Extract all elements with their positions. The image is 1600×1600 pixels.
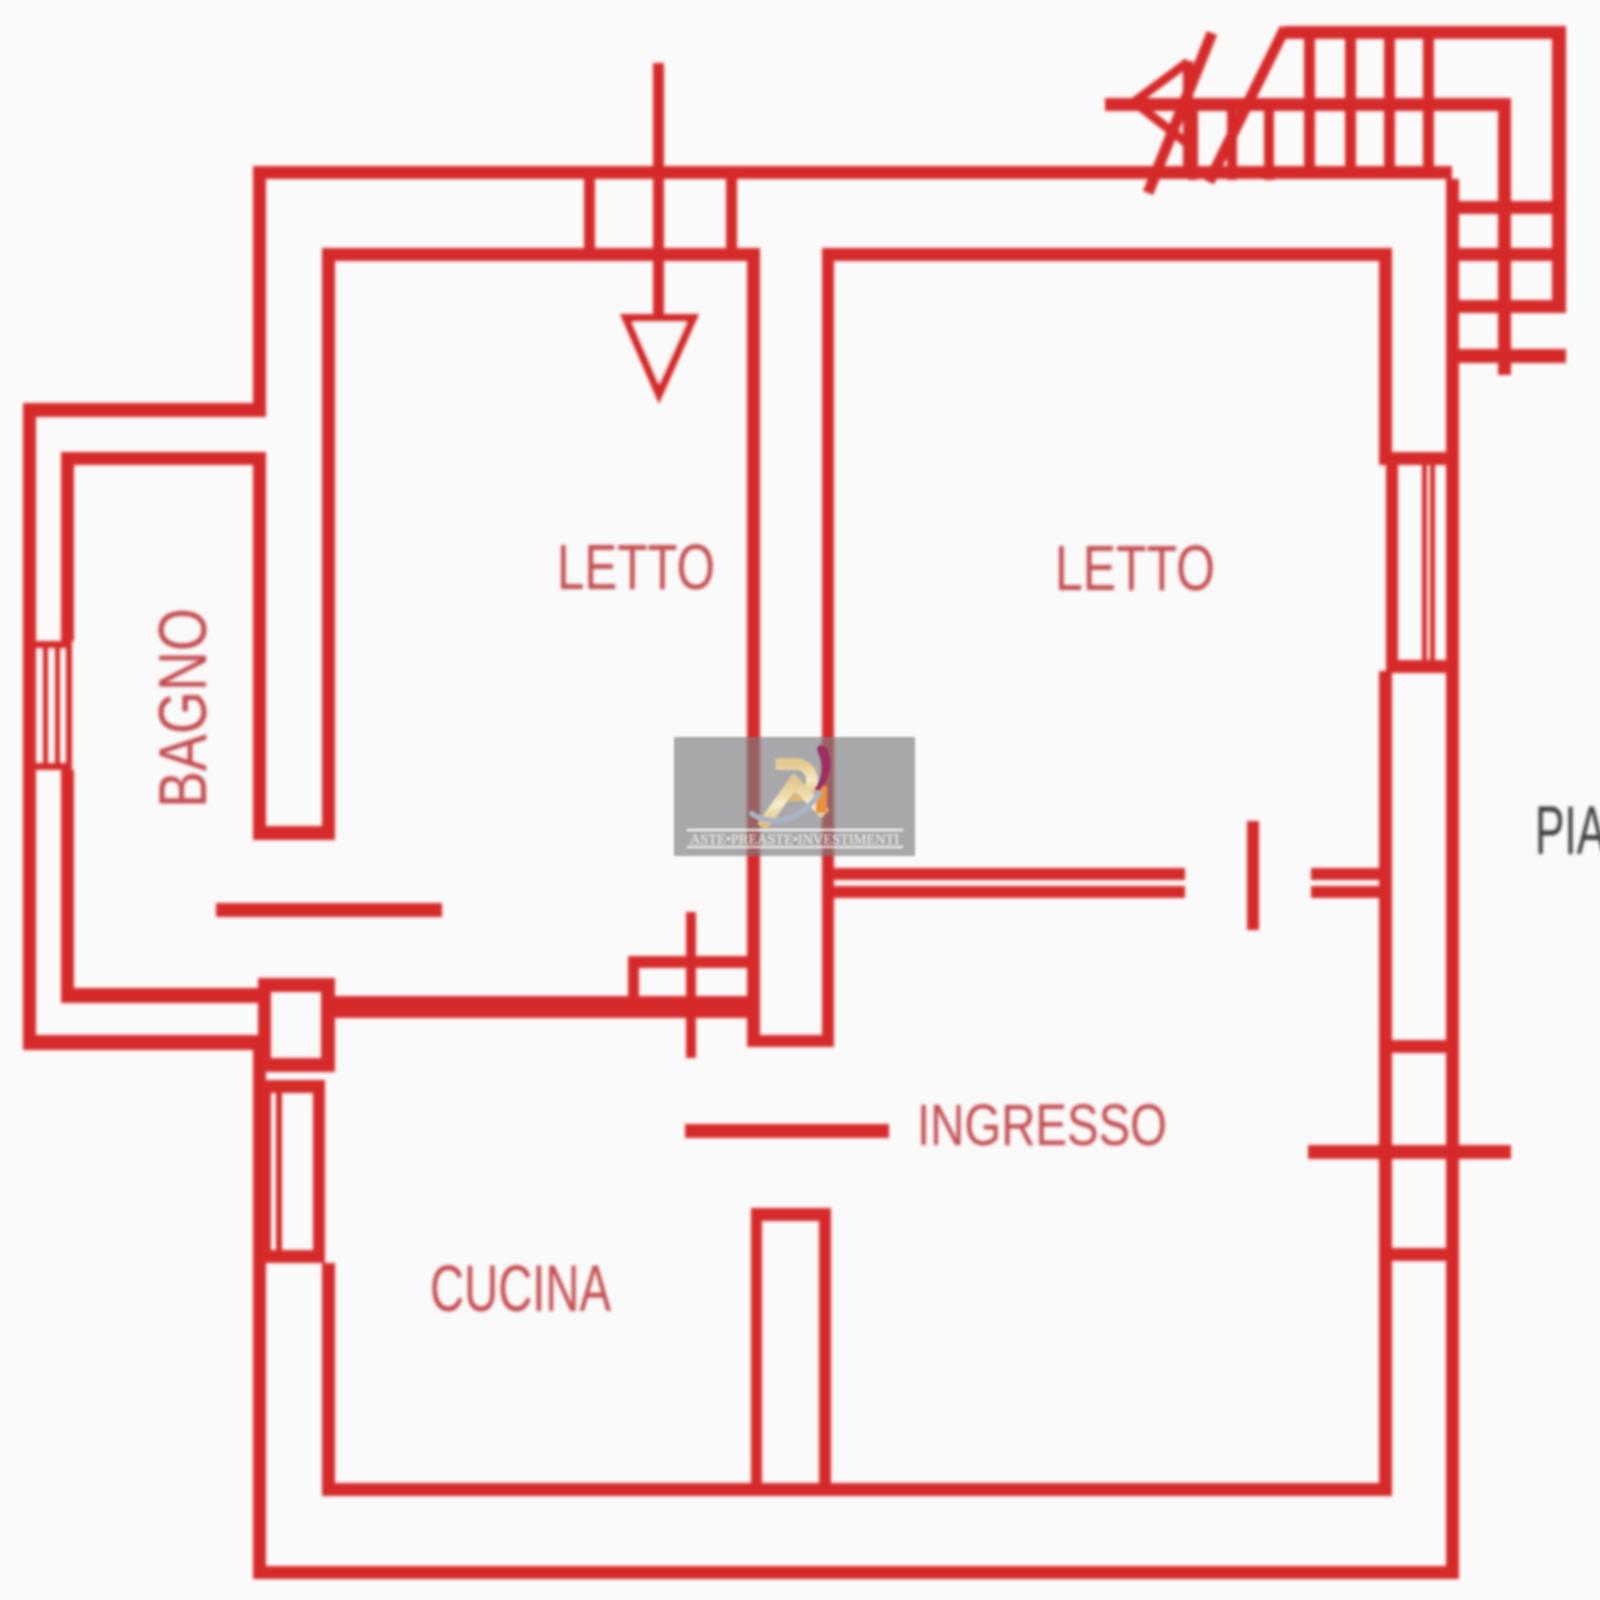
svg-text:LETTO: LETTO [1055, 532, 1215, 604]
svg-text:PIAN: PIAN [1535, 792, 1600, 869]
svg-text:LETTO: LETTO [557, 531, 715, 603]
svg-text:INGRESSO: INGRESSO [917, 1093, 1167, 1158]
svg-text:CUCINA: CUCINA [430, 1251, 611, 1325]
svg-text:ASTE•PREASTE•INVESTIMENTI: ASTE•PREASTE•INVESTIMENTI [690, 832, 899, 848]
svg-text:BAGNO: BAGNO [145, 608, 221, 808]
